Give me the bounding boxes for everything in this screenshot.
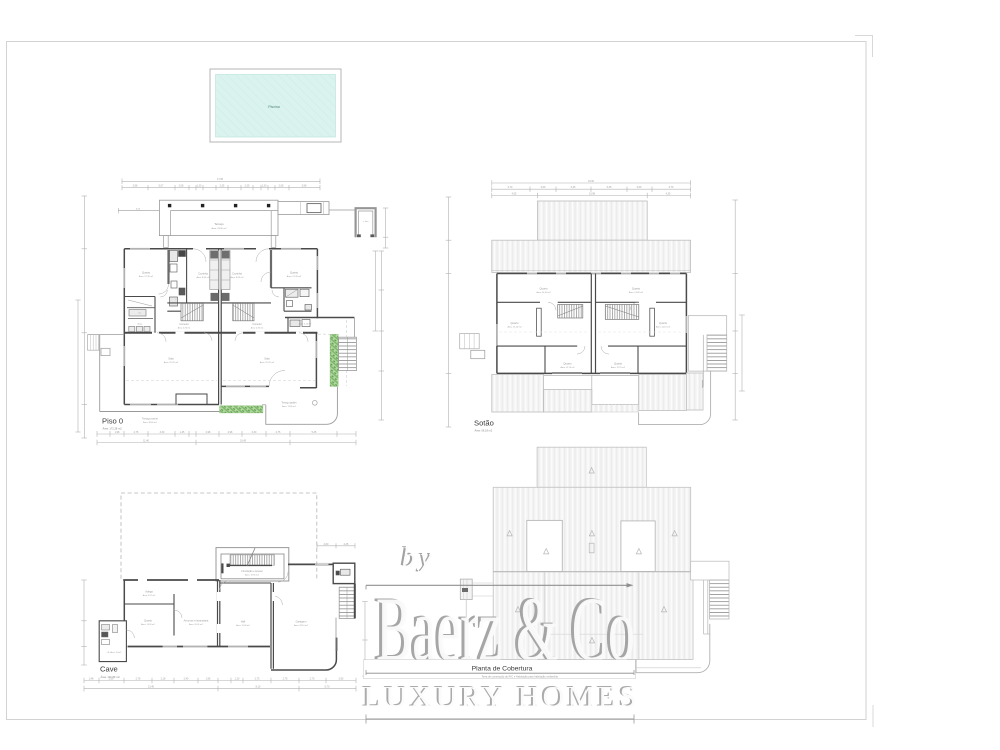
svg-text:1,30: 1,30 bbox=[262, 185, 267, 188]
svg-text:I.S.: I.S. bbox=[298, 320, 301, 322]
svg-text:Sala: Sala bbox=[264, 357, 270, 361]
svg-text:Quarto: Quarto bbox=[632, 287, 641, 291]
svg-text:Área: 20,01 m2: Área: 20,01 m2 bbox=[189, 623, 204, 626]
svg-text:Cozinha: Cozinha bbox=[198, 272, 208, 276]
svg-text:Área: 28,10 m2: Área: 28,10 m2 bbox=[294, 624, 309, 627]
svg-text:Área: 172,28 m2: Área: 172,28 m2 bbox=[103, 426, 123, 430]
svg-text:c. lixo: c. lixo bbox=[363, 221, 369, 223]
svg-text:Sala: Sala bbox=[168, 357, 174, 361]
svg-text:Cozinha: Cozinha bbox=[232, 272, 242, 276]
svg-text:Área: 11,70 m2: Área: 11,70 m2 bbox=[560, 366, 575, 369]
svg-text:4,35: 4,35 bbox=[666, 193, 671, 196]
svg-text:Corredor: Corredor bbox=[252, 323, 262, 326]
svg-text:2,75: 2,75 bbox=[255, 678, 260, 681]
svg-text:Área: 11,10 m2: Área: 11,10 m2 bbox=[656, 326, 671, 329]
svg-text:5,07: 5,07 bbox=[159, 185, 164, 188]
svg-text:Cave: Cave bbox=[100, 665, 118, 674]
svg-text:Quarto: Quarto bbox=[614, 362, 623, 366]
svg-text:2,70: 2,70 bbox=[310, 678, 315, 681]
svg-text:5,45: 5,45 bbox=[312, 431, 317, 434]
svg-text:Área: 14,60 m2: Área: 14,60 m2 bbox=[629, 291, 644, 294]
svg-text:Área: 29,90 m2: Área: 29,90 m2 bbox=[212, 227, 228, 230]
svg-text:2,60: 2,60 bbox=[541, 186, 546, 189]
svg-text:Área: 11,30 m2: Área: 11,30 m2 bbox=[236, 624, 250, 627]
svg-text:Área: 11,10 m2: Área: 11,10 m2 bbox=[507, 326, 522, 329]
svg-text:Área de construção do R/C e Ha: Área de construção do R/C e Habitação pa… bbox=[482, 674, 558, 678]
svg-text:3,98: 3,98 bbox=[302, 185, 307, 188]
svg-text:2,75: 2,75 bbox=[276, 431, 281, 434]
svg-text:3,70: 3,70 bbox=[669, 186, 674, 189]
svg-text:Planta de Cobertura: Planta de Cobertura bbox=[472, 665, 533, 672]
svg-text:Garagem: Garagem bbox=[296, 620, 307, 624]
svg-text:2,76: 2,76 bbox=[283, 678, 288, 681]
svg-text:3,45: 3,45 bbox=[571, 186, 576, 189]
svg-text:Área: 96,18 m2: Área: 96,18 m2 bbox=[475, 428, 493, 432]
svg-text:Área: 4,90 m2: Área: 4,90 m2 bbox=[178, 326, 191, 329]
svg-text:3,45: 3,45 bbox=[607, 186, 612, 189]
svg-text:2,98: 2,98 bbox=[206, 431, 211, 434]
svg-text:Terraço: Terraço bbox=[214, 222, 224, 226]
svg-text:Área: 25,70 m2: Área: 25,70 m2 bbox=[164, 361, 179, 364]
svg-text:Área: 12,35 m2: Área: 12,35 m2 bbox=[287, 275, 302, 278]
svg-text:3,98: 3,98 bbox=[133, 185, 138, 188]
svg-text:Área: 8,05 m2: Área: 8,05 m2 bbox=[196, 276, 210, 279]
svg-text:Área: 12,35 m2: Área: 12,35 m2 bbox=[139, 275, 154, 278]
svg-text:5,70: 5,70 bbox=[325, 686, 330, 689]
svg-text:Área: 14,60 m2: Área: 14,60 m2 bbox=[536, 291, 551, 294]
svg-text:1,98: 1,98 bbox=[115, 431, 120, 434]
svg-text:I.S. Área: 3,2m2: I.S. Área: 3,2m2 bbox=[107, 651, 122, 654]
svg-text:1,45: 1,45 bbox=[180, 431, 185, 434]
svg-text:13,40: 13,40 bbox=[148, 686, 155, 689]
svg-text:Área: 19,95 m2: Área: 19,95 m2 bbox=[245, 574, 260, 577]
svg-text:2,08: 2,08 bbox=[279, 185, 284, 188]
svg-text:3,30: 3,30 bbox=[160, 431, 165, 434]
svg-text:Área: 25,70 m2: Área: 25,70 m2 bbox=[260, 361, 275, 364]
svg-text:Terraço jardim: Terraço jardim bbox=[281, 402, 296, 405]
svg-text:2,35: 2,35 bbox=[220, 185, 225, 188]
svg-text:Piscina: Piscina bbox=[268, 105, 280, 109]
svg-text:Área: 8,05 m2: Área: 8,05 m2 bbox=[230, 276, 244, 279]
svg-text:Quarto: Quarto bbox=[510, 321, 519, 325]
svg-text:lav.: lav. bbox=[139, 313, 142, 315]
svg-text:Quarto: Quarto bbox=[142, 271, 151, 275]
svg-text:17,05: 17,05 bbox=[217, 178, 224, 181]
svg-text:Sotão: Sotão bbox=[474, 419, 494, 428]
svg-text:Adega: Adega bbox=[145, 590, 153, 594]
svg-text:Área: 13,80 m2: Área: 13,80 m2 bbox=[282, 405, 297, 408]
svg-text:Quarto: Quarto bbox=[144, 619, 152, 623]
svg-text:10,45: 10,45 bbox=[240, 440, 247, 443]
svg-text:19,90: 19,90 bbox=[588, 180, 595, 183]
svg-text:I.S.: I.S. bbox=[175, 299, 178, 301]
svg-text:2,40: 2,40 bbox=[184, 678, 189, 681]
svg-text:Área: 4,90 m2: Área: 4,90 m2 bbox=[251, 326, 264, 329]
svg-text:10,98: 10,98 bbox=[589, 193, 596, 196]
svg-text:2,60: 2,60 bbox=[637, 186, 642, 189]
svg-text:3,30: 3,30 bbox=[252, 431, 257, 434]
svg-text:1,30: 1,30 bbox=[197, 185, 202, 188]
svg-text:Área: 9,07 m2: Área: 9,07 m2 bbox=[143, 594, 156, 597]
svg-text:Piso 0: Piso 0 bbox=[102, 417, 123, 426]
svg-text:Quarto: Quarto bbox=[563, 362, 572, 366]
svg-text:Quarto: Quarto bbox=[290, 271, 299, 275]
svg-text:1,48: 1,48 bbox=[89, 678, 94, 681]
svg-text:2,50: 2,50 bbox=[109, 678, 114, 681]
svg-text:2,95: 2,95 bbox=[339, 678, 344, 681]
svg-text:2,35: 2,35 bbox=[245, 185, 250, 188]
svg-text:Área: 13,26 m2: Área: 13,26 m2 bbox=[141, 623, 156, 626]
svg-text:Área: 11,70 m2: Área: 11,70 m2 bbox=[611, 366, 626, 369]
svg-text:1,20: 1,20 bbox=[235, 678, 240, 681]
svg-text:2,76: 2,76 bbox=[136, 678, 141, 681]
svg-text:Circulação e Acesso: Circulação e Acesso bbox=[241, 570, 263, 573]
svg-text:2,60: 2,60 bbox=[324, 543, 329, 546]
svg-text:2,75: 2,75 bbox=[134, 431, 139, 434]
svg-text:Corredor: Corredor bbox=[179, 323, 189, 326]
svg-text:11,40: 11,40 bbox=[143, 440, 149, 443]
svg-text:Arrumos e lavandaria: Arrumos e lavandaria bbox=[184, 619, 209, 623]
svg-text:Área: 3,10 m2: Área: 3,10 m2 bbox=[299, 323, 312, 326]
svg-text:Hall: Hall bbox=[241, 620, 246, 624]
svg-text:desp.: desp. bbox=[138, 324, 143, 326]
svg-text:Quarto: Quarto bbox=[539, 287, 548, 291]
svg-text:Terraço poente: Terraço poente bbox=[142, 418, 159, 421]
svg-text:2,08: 2,08 bbox=[179, 185, 184, 188]
svg-text:2,45: 2,45 bbox=[344, 543, 349, 546]
svg-text:2,18: 2,18 bbox=[161, 678, 166, 681]
svg-text:4,55: 4,55 bbox=[512, 193, 517, 196]
svg-text:2,98: 2,98 bbox=[228, 431, 233, 434]
svg-text:8,10: 8,10 bbox=[256, 686, 261, 689]
svg-text:1,96: 1,96 bbox=[206, 678, 211, 681]
svg-text:Área: 38,60 m2: Área: 38,60 m2 bbox=[143, 421, 158, 424]
svg-text:3,70: 3,70 bbox=[508, 186, 513, 189]
svg-text:Quarto: Quarto bbox=[659, 321, 668, 325]
